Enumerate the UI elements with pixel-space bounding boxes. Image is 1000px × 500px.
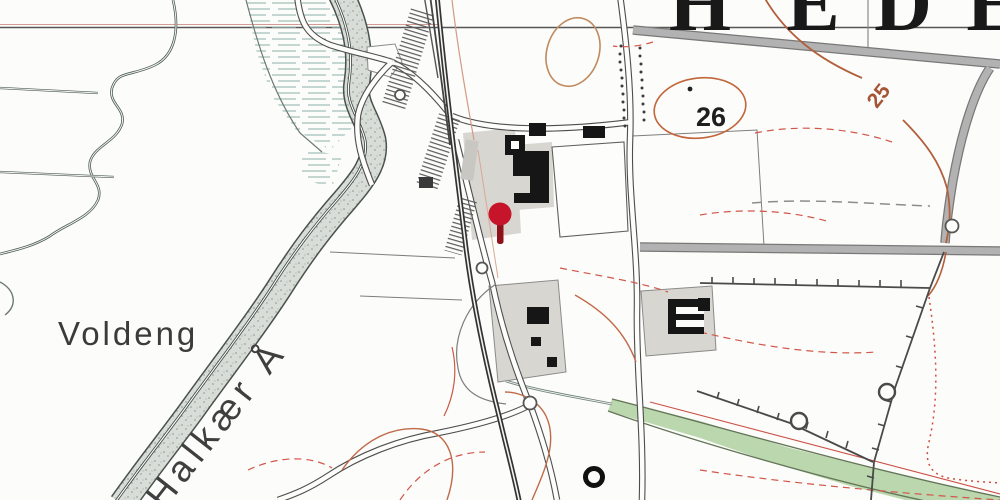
svg-text:H: H: [669, 0, 731, 48]
junction-circle: [395, 90, 405, 100]
map-canvas[interactable]: Voldeng Halkær Å 26 25 H E D E: [0, 0, 1000, 500]
topographic-map[interactable]: Voldeng Halkær Å 26 25 H E D E: [0, 0, 1000, 500]
junction-circle: [946, 220, 959, 233]
spot-height-dot: [688, 87, 693, 92]
svg-text:D: D: [874, 0, 932, 48]
elevation-label-26: 26: [696, 102, 726, 132]
area-label: Voldeng: [58, 315, 198, 352]
junction-circle: [524, 397, 537, 410]
svg-text:E: E: [786, 0, 839, 48]
svg-text:E: E: [966, 0, 1000, 48]
junction-circle: [477, 263, 488, 274]
